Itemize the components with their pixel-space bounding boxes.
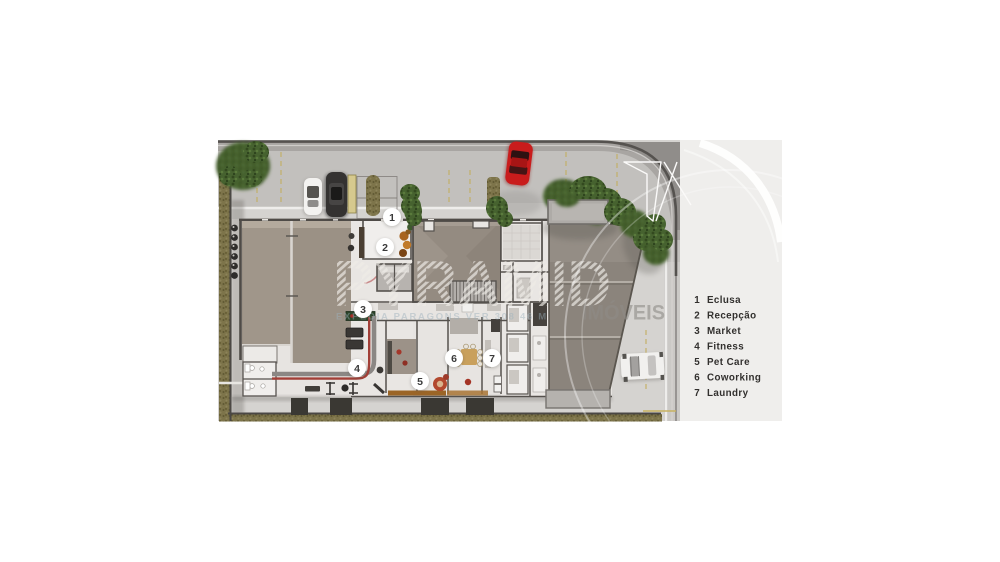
svg-text:PYRAMID: PYRAMID xyxy=(333,247,611,320)
svg-text:Eclusa: Eclusa xyxy=(707,295,741,306)
svg-text:Coworking: Coworking xyxy=(707,373,761,384)
svg-text:7: 7 xyxy=(694,388,700,399)
svg-text:1: 1 xyxy=(389,212,395,224)
svg-text:6: 6 xyxy=(694,373,700,384)
svg-text:Market: Market xyxy=(707,326,741,337)
svg-text:6: 6 xyxy=(451,353,457,365)
svg-text:Pet Care: Pet Care xyxy=(707,357,750,368)
svg-text:5: 5 xyxy=(417,376,423,388)
svg-text:2: 2 xyxy=(694,310,700,321)
svg-text:Laundry: Laundry xyxy=(707,388,749,399)
svg-text:4: 4 xyxy=(354,363,360,375)
svg-text:7: 7 xyxy=(489,353,495,365)
svg-text:Recepção: Recepção xyxy=(707,310,757,321)
svg-text:1: 1 xyxy=(694,295,700,306)
svg-text:2: 2 xyxy=(382,242,388,254)
svg-text:3: 3 xyxy=(360,304,366,316)
svg-text:5: 5 xyxy=(694,357,700,368)
svg-text:3: 3 xyxy=(694,326,700,337)
svg-text:IMÓVEIS: IMÓVEIS xyxy=(582,301,665,325)
svg-text:4: 4 xyxy=(694,342,700,353)
svg-text:Fitness: Fitness xyxy=(707,342,744,353)
